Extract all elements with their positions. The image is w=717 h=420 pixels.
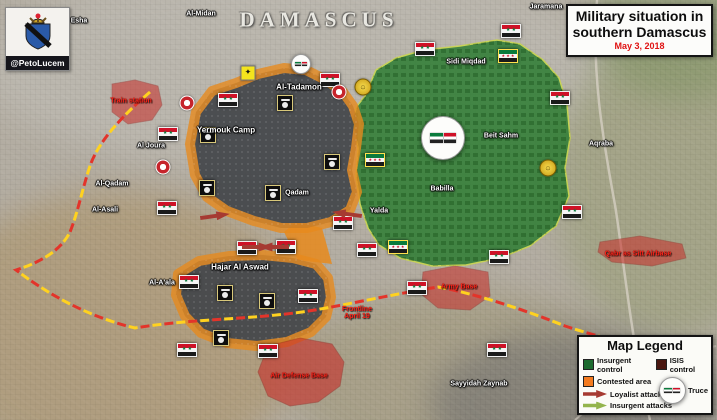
title-box: Military situation in southern Damascus … (566, 4, 713, 57)
place-label-qabr-as-sitt-airbase: Qabr as Sitt Airbase (605, 251, 672, 258)
place-label-train-station: Train station (110, 98, 152, 105)
contested-area-swatch (583, 376, 594, 387)
place-label-hajar-al-aswad: Hajar Al Aswad (211, 263, 269, 272)
insurgent-control-swatch (583, 359, 594, 370)
author-handle: @PetoLucem (6, 56, 69, 70)
legend-row-control: Insurgent control ISIS control (583, 356, 707, 374)
place-label-al-asali: Al-Asali (92, 207, 118, 214)
cartographer-logo-box: @PetoLucem (5, 7, 70, 71)
insurgent-attack-arrow-icon (583, 402, 607, 410)
place-label-al-joura: Al Joura (137, 143, 165, 150)
place-label-al-a-ala: Al-A'ala (149, 280, 175, 287)
coat-of-arms-icon (6, 8, 69, 56)
place-label-jaramana: Jaramana (530, 4, 563, 11)
place-label-sidi-miqdad: Sidi Miqdad (446, 59, 485, 66)
map-legend: Map Legend Insurgent control ISIS contro… (577, 335, 713, 415)
map-title-line1: Military situation in (569, 9, 710, 25)
legend-label: Insurgent control (597, 356, 653, 374)
place-label-al-tadamon: Al-Tadamon (276, 83, 322, 92)
place-label-beit-sahm: Beit Sahm (484, 133, 518, 140)
legend-item-isis-control: ISIS control (656, 356, 707, 374)
place-label-air-defense-base: Air Defense Base (270, 373, 328, 380)
place-label-al-qadam: Al-Qadam (95, 181, 128, 188)
place-label-aqraba: Aqraba (589, 141, 613, 148)
isis-control-swatch (656, 359, 667, 370)
legend-item-truce: Truce (659, 377, 708, 404)
place-label-yalda: Yalda (370, 208, 388, 215)
place-label-al-midan: Al-Midan (186, 11, 216, 18)
place-label-frontline-april-19: Frontline April 19 (342, 306, 372, 320)
legend-label: Truce (688, 386, 708, 395)
legend-label: ISIS control (670, 356, 707, 374)
place-label-qadam: Qadam (285, 190, 309, 197)
legend-title: Map Legend (583, 338, 707, 353)
truce-icon (659, 377, 686, 404)
map-date: May 3, 2018 (569, 41, 710, 51)
city-label-damascus: DAMASCUS (239, 8, 398, 33)
place-label-sayyidah-zaynab: Sayyidah Zaynab (450, 381, 507, 388)
legend-label: Loyalist attacks (610, 390, 666, 399)
legend-item-insurgent-control: Insurgent control (583, 356, 653, 374)
loyalist-attack-arrow-icon (583, 390, 607, 398)
place-label-yermouk-camp: Yermouk Camp (197, 126, 255, 135)
map-canvas: ★ ★★ ★★ ★★ ★★ ★★ ★★ ★★ ★★ ★★ ★★ ★★ ★★ ★★… (0, 0, 717, 420)
legend-label: Contested area (597, 377, 651, 386)
map-title-line2: southern Damascus (569, 25, 710, 41)
place-label-army-base: Army Base (441, 284, 478, 291)
place-label-babilla: Babilla (431, 186, 454, 193)
